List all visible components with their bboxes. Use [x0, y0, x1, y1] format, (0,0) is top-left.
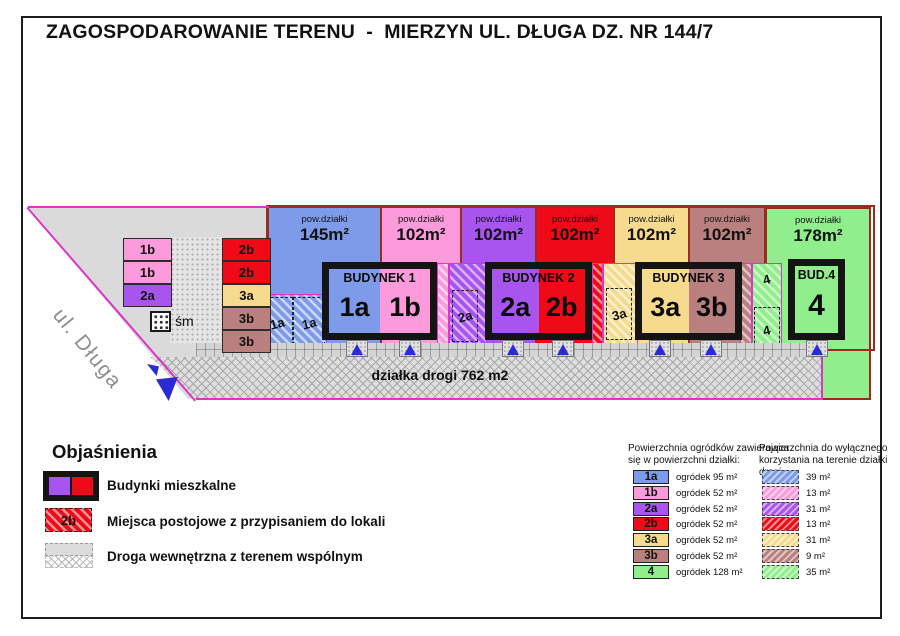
exclusive-value: 9 m² [806, 551, 825, 562]
entrance-triangle-icon [654, 344, 666, 355]
gardens-swatch-1a: 1a [633, 470, 669, 484]
plot-area: 102m² [537, 225, 613, 245]
building-1: 1a 1b BUDYNEK 1 [322, 262, 437, 340]
unit-label: 3b [696, 292, 728, 323]
parking-cell-2b: 2b [222, 238, 271, 261]
parking-cell-3b: 3b [222, 330, 271, 353]
legend-road-swatch-bottom [45, 556, 93, 568]
parking-label: 3b [239, 311, 254, 326]
plot-caption: pow.działki [767, 216, 869, 226]
parking-label: 2b [239, 265, 254, 280]
swatch-key: 2b [644, 518, 657, 530]
plot-area: 102m² [615, 225, 688, 245]
parking-cell-2b: 2b [222, 261, 271, 284]
entrance-porch [502, 340, 524, 357]
building-name: BUD.4 [795, 268, 838, 282]
drawing-title: ZAGOSPODAROWANIE TERENU - MIERZYN UL. DŁ… [46, 21, 713, 44]
plot-caption: pow.działki [269, 215, 380, 225]
entrance-triangle-icon [705, 344, 717, 355]
gardens-swatch-2b: 2b [633, 517, 669, 531]
unit-label: 2a [500, 292, 530, 323]
gardens-swatch-4: 4 [633, 565, 669, 579]
exclusive-area-1b [437, 263, 449, 352]
entrance-triangle-icon [351, 344, 363, 355]
boundary-line-top [28, 206, 269, 208]
gardens-value: ogródek 128 m² [676, 567, 743, 578]
gardens-value: ogródek 52 m² [676, 488, 737, 499]
exclusive-swatch-4 [762, 565, 799, 579]
building-4: 4 BUD.4 [788, 259, 845, 340]
swatch-key: 2a [645, 503, 658, 515]
parking-label: 2b [239, 242, 254, 257]
parking-label: 4 [762, 322, 773, 338]
parking-cell-1b: 1b [123, 261, 172, 284]
gardens-value: ogródek 52 m² [676, 535, 737, 546]
swatch-key: 1a [645, 471, 658, 483]
exclusive-table-title-1: Powierzchnia do wyłącznego [759, 443, 887, 455]
entrance-porch [649, 340, 671, 357]
swatch-key: 4 [648, 566, 654, 578]
road-label: działka drogi 762 m2 [310, 367, 570, 383]
plot-caption: pow.działki [615, 215, 688, 225]
gardens-value: ogródek 52 m² [676, 519, 737, 530]
legend-road-swatch-top [45, 543, 93, 556]
plot-caption: pow.działki [537, 215, 613, 225]
parking-label: 2a [456, 307, 474, 325]
plot-area: 102m² [690, 225, 764, 245]
legend-buildings-label: Budynki mieszkalne [107, 478, 236, 493]
plot-area: 102m² [382, 225, 460, 245]
plot-caption: pow.działki [382, 215, 460, 225]
gardens-value: ogródek 52 m² [676, 504, 737, 515]
plot-area: 102m² [462, 225, 535, 245]
building-name: BUDYNEK 3 [642, 271, 735, 285]
parking-label: 2a [140, 288, 154, 303]
unit-label: 1a [339, 292, 369, 323]
swatch-key: 1b [644, 487, 657, 499]
exclusive-value: 31 m² [806, 504, 830, 515]
plot-area: 178m² [767, 226, 869, 246]
entrance-triangle-icon [404, 344, 416, 355]
exclusive-swatch-3b [762, 549, 799, 563]
entrance-porch [700, 340, 722, 357]
exclusive-swatch-3a [762, 533, 799, 547]
parking-cell-2a: 2a [123, 284, 172, 307]
exclusive-value: 39 m² [806, 472, 830, 483]
unit-label: 2b [546, 292, 578, 323]
swatch-key: 3b [644, 550, 657, 562]
waste-label: śm [175, 313, 194, 329]
gardens-value: ogródek 52 m² [676, 551, 737, 562]
legend-purple-square [49, 477, 70, 495]
exclusive-value: 13 m² [806, 519, 830, 530]
gardens-value: ogródek 95 m² [676, 472, 737, 483]
unit-label: 3a [650, 292, 680, 323]
exclusive-area-2b [592, 263, 603, 352]
parking-cell-3b: 3b [222, 307, 271, 330]
exclusive-swatch-2a [762, 502, 799, 516]
legend-red-square [72, 477, 93, 495]
building-name: BUDYNEK 1 [329, 271, 430, 285]
entrance-triangle-icon [507, 344, 519, 355]
plot-caption: pow.działki [462, 215, 535, 225]
entrance-triangle-icon [811, 344, 823, 355]
entrance-porch [552, 340, 574, 357]
entrance-porch [806, 340, 828, 357]
legend-heading: Objaśnienia [52, 441, 157, 463]
legend-parking-swatch-label: 2b [61, 513, 76, 528]
entrance-triangle-icon [557, 344, 569, 355]
building-2: 2a 2b BUDYNEK 2 [485, 262, 592, 340]
legend-road-label: Droga wewnętrzna z terenem wspólnym [107, 549, 363, 564]
boundary-line-bottom [196, 398, 822, 400]
strip-4-label: 4 [752, 272, 782, 287]
gardens-swatch-3b: 3b [633, 549, 669, 563]
unit-label: 4 [808, 289, 825, 323]
exclusive-swatch-2b [762, 517, 799, 531]
unit-label: 1b [389, 292, 421, 323]
parking-label: 1b [140, 242, 155, 257]
plot-caption: pow.działki [690, 215, 764, 225]
legend-parking-swatch: 2b [45, 508, 92, 532]
exclusive-value: 13 m² [806, 488, 830, 499]
exclusive-value: 31 m² [806, 535, 830, 546]
parking-label: 3b [239, 334, 254, 349]
exclusive-swatch-1a [762, 470, 799, 484]
gardens-swatch-2a: 2a [633, 502, 669, 516]
parking-cell-1b: 1b [123, 238, 172, 261]
gardens-table-title-2: się w powierzchni działki: [628, 455, 740, 467]
parking-space-3a: 3a [606, 288, 632, 340]
building-name: BUDYNEK 2 [492, 271, 585, 285]
gardens-swatch-1b: 1b [633, 486, 669, 500]
building-3: 3a 3b BUDYNEK 3 [635, 262, 742, 340]
parking-label: 1a [300, 314, 318, 332]
entrance-porch [399, 340, 421, 357]
legend-parking-label: Miejsca postojowe z przypisaniem do loka… [107, 514, 385, 529]
gardens-swatch-3a: 3a [633, 533, 669, 547]
parking-space-2a: 2a [452, 290, 478, 342]
parking-label: 4 [762, 271, 773, 287]
plot-area: 145m² [269, 225, 380, 245]
exclusive-swatch-1b [762, 486, 799, 500]
exclusive-value: 35 m² [806, 567, 830, 578]
parking-label: 3a [610, 305, 628, 323]
waste-bin-icon [150, 311, 171, 332]
parking-cell-3a: 3a [222, 284, 271, 307]
parking-label: 3a [239, 288, 253, 303]
swatch-key: 3a [645, 534, 658, 546]
legend-buildings-swatch [43, 471, 99, 501]
entrance-porch [346, 340, 368, 357]
parking-label: 1b [140, 265, 155, 280]
